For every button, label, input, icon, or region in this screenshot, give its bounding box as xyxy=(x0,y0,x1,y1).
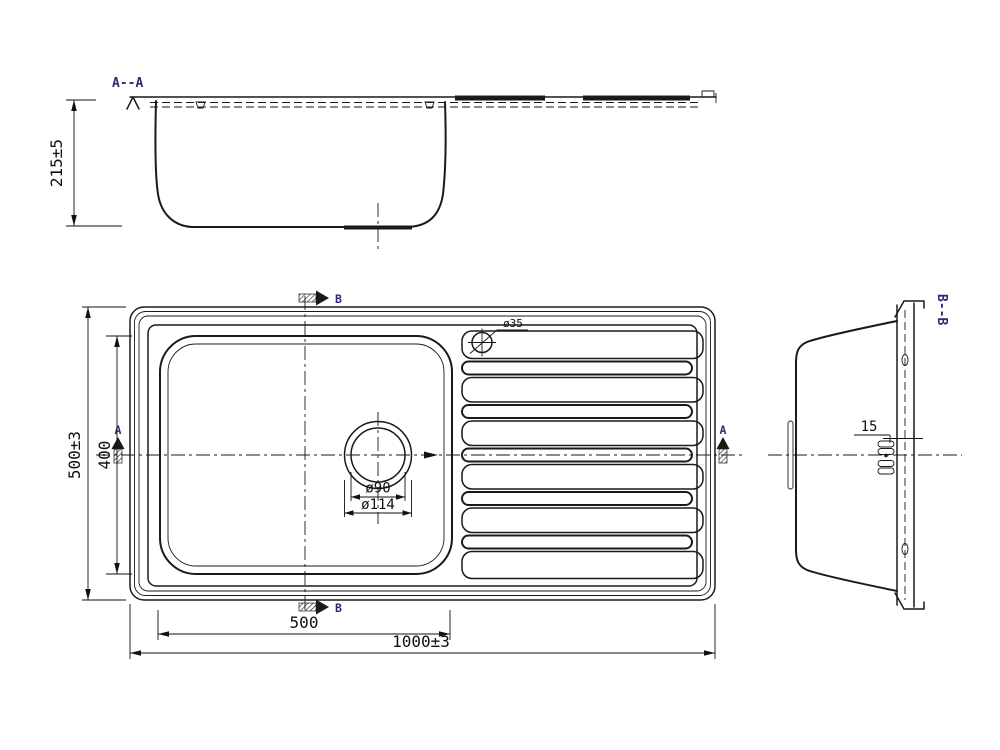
drawing-canvas: A--A 215±5 xyxy=(0,0,1000,750)
marker-b-label: B xyxy=(335,292,342,306)
centerline-arrow xyxy=(424,452,438,459)
bowl-length-value: 500 xyxy=(290,613,319,632)
sink-technical-drawing: A--A 215±5 xyxy=(0,0,1000,750)
plan-view: ø35 ø90 ø114 xyxy=(65,291,742,660)
overall-length-value: 1000±3 xyxy=(392,632,450,651)
marker-a-label: A xyxy=(115,423,122,437)
dim-overall-depth: 215±5 xyxy=(47,100,122,226)
groove-end-profiles xyxy=(878,441,894,474)
overall-depth-value: 215±5 xyxy=(47,139,66,187)
rim-flange-value: 15 xyxy=(861,419,878,435)
bowl-section-profile xyxy=(796,321,897,591)
tap-hole: ø35 xyxy=(468,317,528,357)
drain-inner-value: ø90 xyxy=(365,481,390,497)
dim-rim-flange: 15 xyxy=(854,419,923,443)
tap-hole-value: ø35 xyxy=(503,317,523,330)
rim-weld-segment xyxy=(583,96,690,101)
bottom-clip xyxy=(895,593,924,609)
drain-outer-value: ø114 xyxy=(361,497,395,513)
section-aa-view: A--A 215±5 xyxy=(47,76,716,252)
marker-b-label: B xyxy=(335,601,342,615)
left-rim-edge xyxy=(127,97,139,109)
rim-weld-segment xyxy=(455,96,545,101)
bowl-profile xyxy=(155,101,445,227)
marker-a-label: A xyxy=(720,423,727,437)
top-clip xyxy=(895,301,924,317)
bowl-width-value: 400 xyxy=(95,441,114,470)
section-aa-label: A--A xyxy=(112,76,143,91)
overall-width-value: 500±3 xyxy=(65,431,84,479)
section-bb-label: B--B xyxy=(934,294,949,325)
dim-overall-length: 1000±3 xyxy=(130,604,715,659)
section-marker-a-right: A xyxy=(717,423,730,463)
section-bb-view: B--B 15 xyxy=(768,294,962,609)
section-marker-b-top: B xyxy=(299,291,342,307)
